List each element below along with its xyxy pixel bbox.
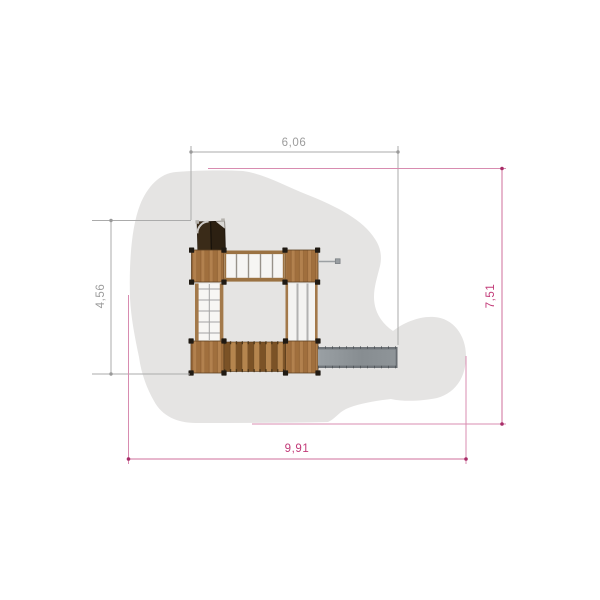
platform-top-right — [285, 250, 318, 282]
pole-rail-section — [286, 284, 318, 341]
rail-band — [307, 284, 309, 341]
plank-bridge — [224, 342, 286, 372]
dimension-label-bottom: 9,91 — [285, 443, 310, 455]
slide — [318, 347, 398, 368]
dimension-label-top: 6,06 — [282, 137, 307, 149]
platform-top-left — [192, 250, 225, 282]
climbing-net — [195, 284, 224, 341]
platform-bottom-right — [286, 341, 319, 373]
plan-drawing: 6,06 4,56 7,51 9,91 — [0, 0, 600, 600]
monkey-bar-bridge — [224, 251, 285, 282]
platform-bottom-left — [191, 341, 224, 373]
tower-roof — [195, 218, 225, 250]
plan-drawing-page: 6,06 4,56 7,51 9,91 — [0, 0, 600, 600]
dimension-label-left: 4,56 — [95, 284, 107, 309]
rail-band — [297, 284, 299, 341]
dimension-label-right: 7,51 — [485, 284, 497, 309]
